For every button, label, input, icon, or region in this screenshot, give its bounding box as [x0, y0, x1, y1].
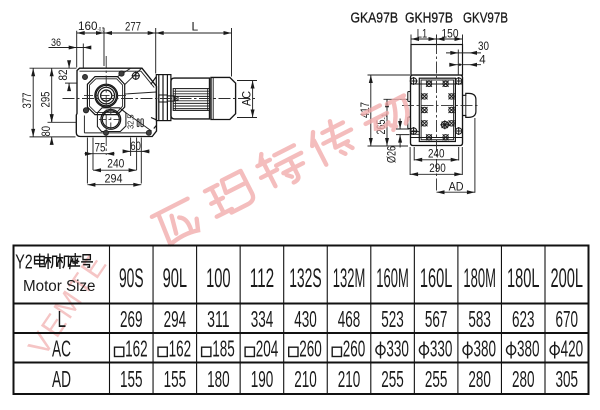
svg-text:204: 204: [256, 336, 279, 362]
svg-text:90L: 90L: [163, 263, 188, 293]
svg-text:AC: AC: [242, 91, 254, 106]
svg-text:240: 240: [428, 149, 445, 161]
svg-text:210: 210: [294, 366, 317, 392]
svg-text:L: L: [58, 306, 67, 332]
svg-text:280: 280: [468, 366, 491, 392]
svg-text:-0.5: -0.5: [98, 27, 105, 34]
svg-text:255: 255: [425, 366, 448, 392]
svg-text:468: 468: [338, 306, 361, 332]
svg-text:160L: 160L: [420, 263, 453, 293]
svg-text:420: 420: [561, 336, 584, 362]
svg-text:255: 255: [381, 366, 404, 392]
svg-text:305: 305: [556, 366, 579, 392]
svg-text:623: 623: [512, 306, 535, 332]
svg-text:AC: AC: [52, 336, 71, 362]
svg-text:430: 430: [294, 306, 317, 332]
svg-text:GKA97B: GKA97B: [351, 10, 399, 27]
svg-text:567: 567: [425, 306, 448, 332]
svg-text:90S: 90S: [119, 263, 144, 293]
svg-text:294: 294: [164, 306, 187, 332]
svg-text:82: 82: [58, 70, 70, 81]
svg-text:112: 112: [250, 263, 275, 293]
svg-text:330: 330: [386, 336, 409, 362]
svg-text:380: 380: [474, 336, 497, 362]
svg-text:60: 60: [130, 141, 141, 153]
svg-text:160M: 160M: [376, 263, 409, 293]
svg-text:150: 150: [442, 28, 459, 40]
svg-text:36: 36: [51, 37, 61, 49]
svg-text:377: 377: [22, 93, 34, 109]
svg-text:162: 162: [125, 336, 148, 362]
svg-text:32.5: 32.5: [127, 114, 136, 129]
svg-text:190: 190: [251, 366, 274, 392]
svg-text:Y2: Y2: [15, 250, 33, 273]
svg-text:155: 155: [120, 366, 143, 392]
svg-text:AD: AD: [52, 366, 71, 392]
svg-text:210: 210: [338, 366, 361, 392]
svg-text:280: 280: [512, 366, 535, 392]
svg-text:295: 295: [41, 92, 53, 108]
svg-text:132M: 132M: [333, 263, 366, 293]
svg-text:277: 277: [125, 19, 141, 33]
svg-text:200L: 200L: [551, 263, 584, 293]
svg-text:334: 334: [251, 306, 274, 332]
svg-text:AD: AD: [449, 181, 464, 193]
svg-text:75: 75: [95, 143, 106, 155]
svg-text:160: 160: [78, 19, 98, 33]
svg-text:Ø26: Ø26: [387, 146, 399, 163]
svg-text:523: 523: [381, 306, 404, 332]
svg-text:240: 240: [107, 159, 124, 171]
svg-text:162: 162: [169, 336, 192, 362]
svg-text:380: 380: [517, 336, 540, 362]
svg-text:80: 80: [41, 126, 53, 137]
svg-text:GKH97B: GKH97B: [405, 10, 453, 27]
svg-text:L: L: [192, 19, 199, 33]
svg-text:GKV97B: GKV97B: [463, 10, 508, 27]
svg-text:330: 330: [430, 336, 453, 362]
svg-text:L1: L1: [417, 28, 428, 40]
svg-text:260: 260: [343, 336, 366, 362]
svg-text:311: 311: [207, 306, 230, 332]
svg-text:269: 269: [120, 306, 143, 332]
svg-text:294: 294: [105, 173, 124, 185]
svg-text:100: 100: [206, 263, 231, 293]
svg-text:155: 155: [164, 366, 187, 392]
svg-text:180M: 180M: [463, 263, 496, 293]
svg-text:180: 180: [207, 366, 230, 392]
svg-text:185: 185: [212, 336, 235, 362]
svg-text:290: 290: [429, 163, 446, 175]
svg-text:30: 30: [478, 41, 489, 53]
svg-text:4: 4: [479, 55, 486, 67]
svg-text:260: 260: [299, 336, 322, 362]
svg-text:Motor Size: Motor Size: [23, 278, 96, 295]
svg-text:132S: 132S: [289, 263, 322, 293]
svg-text:670: 670: [556, 306, 579, 332]
svg-text:180L: 180L: [507, 263, 540, 293]
svg-text:583: 583: [468, 306, 491, 332]
